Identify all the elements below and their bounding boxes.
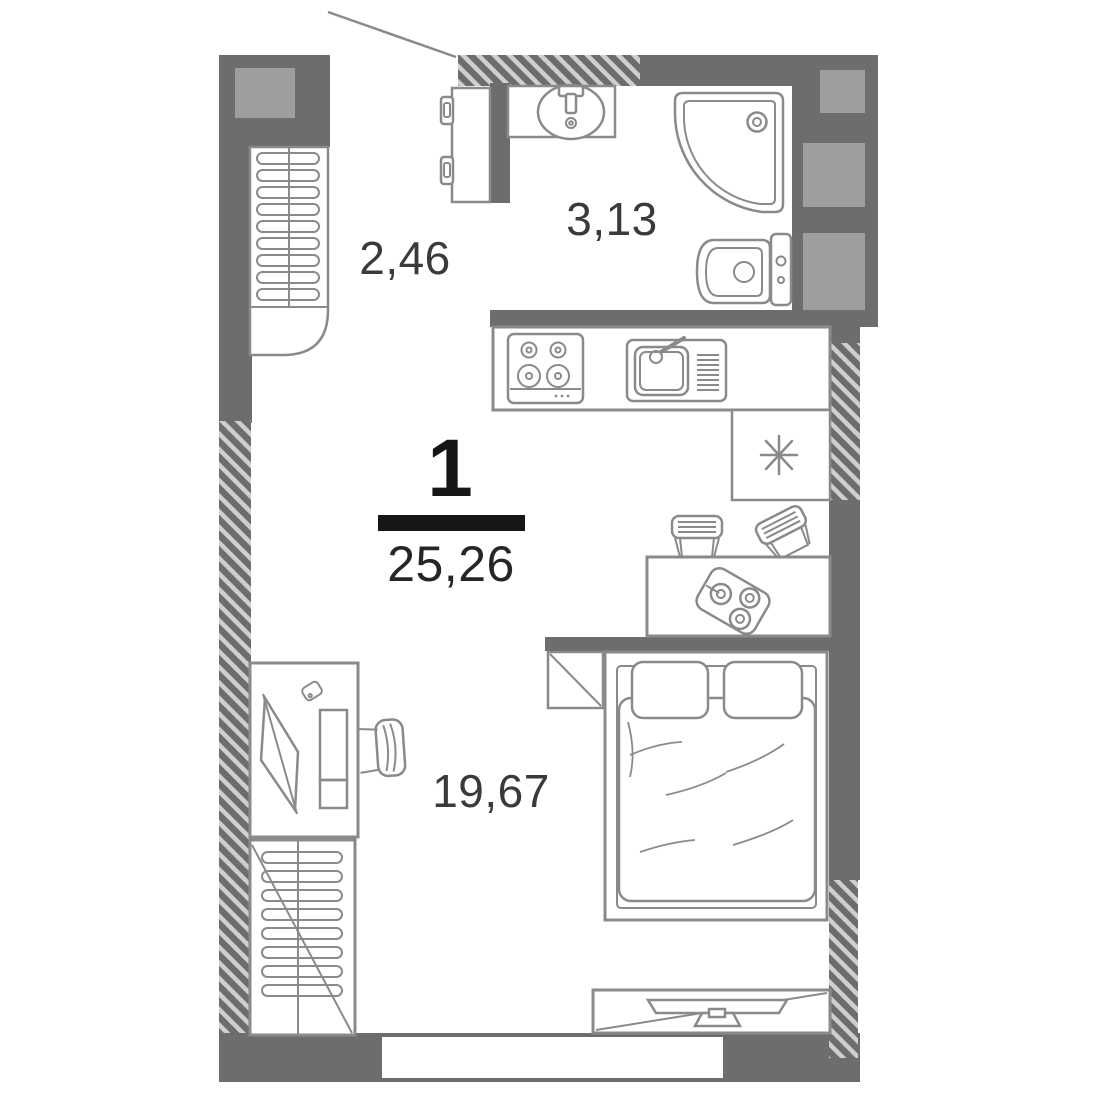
total-area-label: 25,26	[387, 535, 515, 593]
door-hinge-icon	[441, 157, 453, 184]
bathroom-sink	[508, 85, 615, 139]
desk-chair	[357, 719, 406, 778]
toilet-tank	[771, 234, 791, 305]
shaft-top-left	[235, 68, 295, 118]
shaft-right-1	[820, 70, 865, 113]
floor-plan-drawing	[0, 0, 1100, 1100]
entrance-door	[441, 88, 490, 202]
shower-cabin	[675, 93, 783, 212]
wall-right-hatched-lower	[829, 880, 858, 1058]
door-hinge-icon	[441, 97, 453, 124]
blanket	[619, 698, 815, 901]
wall-left-hatched	[219, 421, 251, 1037]
wall-bottom-left	[219, 1033, 382, 1082]
pillow	[724, 662, 802, 718]
desk	[250, 663, 358, 837]
wall-kitchen-bathroom	[490, 310, 878, 327]
hallway-wardrobe	[250, 147, 328, 355]
fridge	[732, 410, 830, 500]
bed	[605, 652, 827, 920]
wall-right-hatched-upper	[829, 343, 860, 500]
wall-entrance-hatched	[458, 55, 640, 86]
entrance-leader-line	[328, 12, 456, 57]
toilet	[697, 234, 791, 305]
faucet-icon	[566, 94, 576, 113]
dining-chair-1	[672, 516, 722, 557]
nightstand	[548, 652, 603, 708]
living-room-area-label: 19,67	[432, 764, 550, 818]
rooms-count-label: 1	[427, 422, 473, 516]
shaft-right-3	[803, 233, 865, 310]
tv-stand	[593, 990, 830, 1033]
window	[382, 1037, 723, 1078]
dining-chair-2	[754, 504, 817, 563]
total-area-divider	[378, 515, 525, 531]
wardrobe	[250, 840, 355, 1035]
floor-plan: 2,46 3,13 19,67 1 25,26	[0, 0, 1100, 1100]
dining-table	[647, 557, 830, 636]
door-leaf	[452, 88, 490, 202]
bathroom-area-label: 3,13	[566, 192, 658, 246]
shaft-right-2	[803, 143, 865, 207]
fridge-asterisk-icon	[761, 436, 797, 474]
pillow	[632, 662, 708, 718]
hallway-area-label: 2,46	[359, 231, 451, 285]
wall-bed-partition	[545, 637, 832, 651]
tv-neck	[709, 1009, 725, 1017]
